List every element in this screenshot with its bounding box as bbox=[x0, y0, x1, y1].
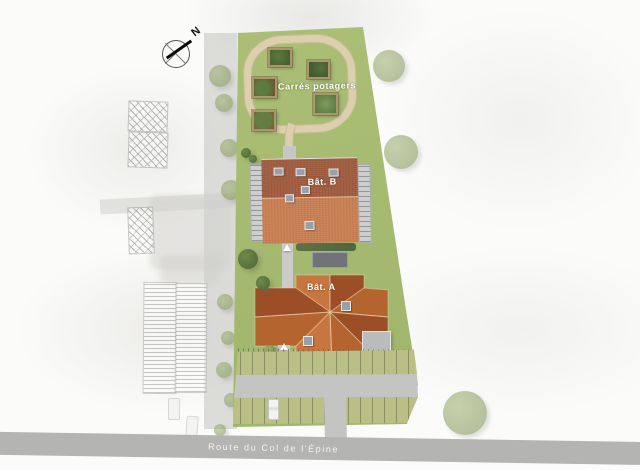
garden-plot bbox=[268, 48, 292, 67]
skylight bbox=[303, 336, 313, 346]
garden-plot bbox=[252, 77, 277, 98]
building-b: Bât. B bbox=[249, 147, 371, 245]
garden-label: Carrés potagers bbox=[278, 80, 356, 91]
north-label: N bbox=[189, 25, 203, 39]
entrance-arrow bbox=[283, 244, 291, 251]
skylight bbox=[285, 194, 294, 202]
skylight bbox=[273, 167, 283, 175]
tree bbox=[256, 276, 270, 290]
skylight bbox=[296, 168, 306, 176]
garden-plot bbox=[307, 60, 330, 79]
compass: N bbox=[160, 26, 208, 72]
skylight bbox=[341, 301, 351, 311]
garden-plot bbox=[313, 93, 338, 115]
car bbox=[268, 399, 279, 420]
skylight bbox=[329, 168, 339, 176]
garden-plot bbox=[252, 110, 276, 131]
site-plan: Carrés potagers Bât. B Bât. A Route du C… bbox=[0, 0, 640, 470]
shelter bbox=[312, 252, 348, 268]
hedge bbox=[296, 243, 356, 251]
tree bbox=[238, 249, 258, 269]
building-b-balconies-east bbox=[357, 164, 371, 243]
building-b-label: Bât. B bbox=[308, 177, 337, 188]
building-a-label: Bât. A bbox=[307, 282, 336, 292]
skylight bbox=[301, 186, 310, 194]
skylight bbox=[304, 221, 314, 230]
